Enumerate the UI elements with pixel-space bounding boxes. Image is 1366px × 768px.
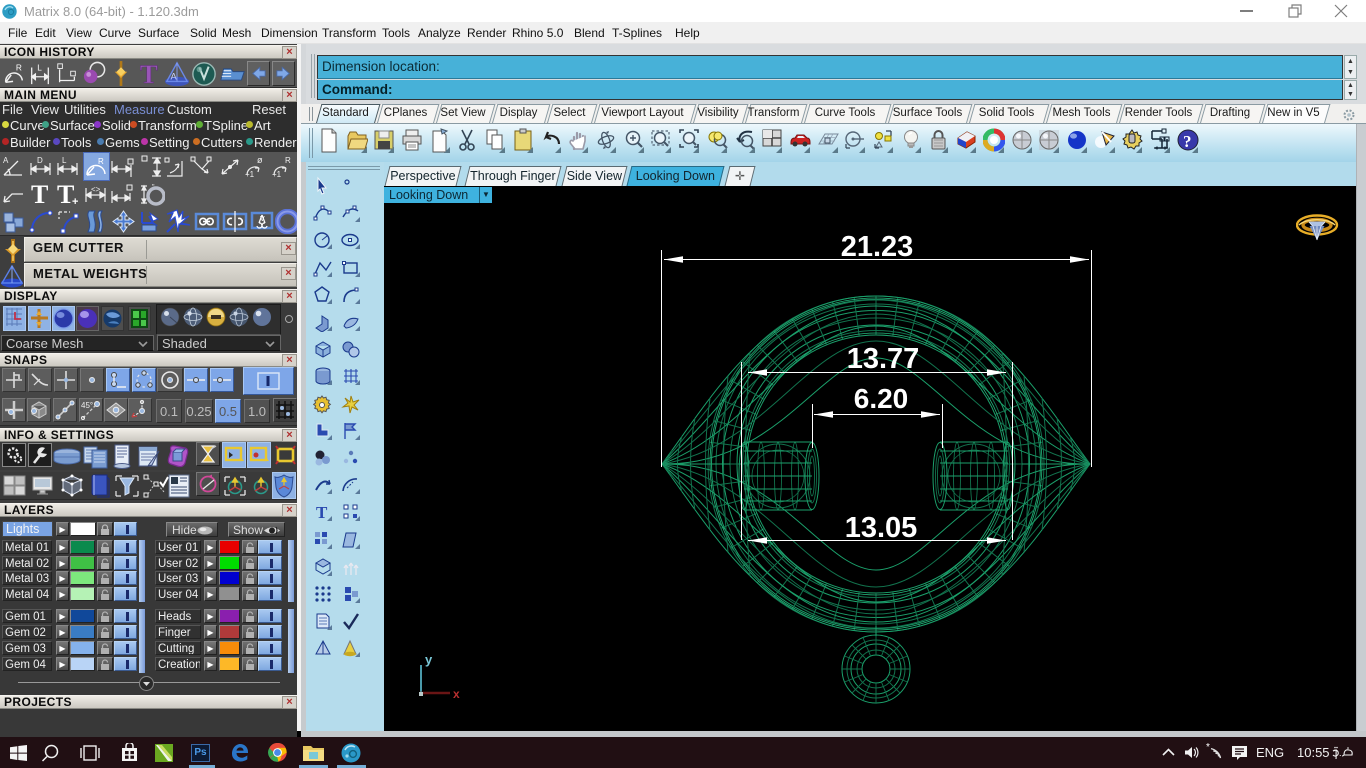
svg-text:T: T	[316, 503, 328, 522]
svg-text:R: R	[16, 62, 22, 72]
svg-text:A: A	[3, 156, 9, 165]
svg-text:+1: +1	[245, 170, 255, 178]
svg-text:45°: 45°	[81, 401, 93, 410]
svg-text:21.23: 21.23	[841, 231, 914, 263]
svg-text:13.05: 13.05	[845, 512, 918, 544]
svg-text:+1: +1	[272, 170, 282, 178]
svg-text:R: R	[98, 157, 104, 166]
svg-text:D: D	[37, 156, 43, 165]
svg-text:+: +	[72, 196, 78, 207]
svg-text:6.20: 6.20	[854, 383, 909, 414]
svg-text:V: V	[260, 216, 265, 223]
svg-text:x: x	[453, 687, 460, 701]
svg-text:T: T	[31, 181, 48, 207]
svg-text:?: ?	[1183, 132, 1192, 151]
svg-text:A: A	[171, 72, 178, 82]
svg-text:y: y	[425, 652, 433, 667]
svg-text:T: T	[140, 60, 158, 87]
svg-text:ø: ø	[257, 155, 263, 165]
svg-text:L: L	[62, 156, 67, 165]
svg-text:R: R	[285, 156, 291, 165]
svg-text:L: L	[37, 62, 42, 72]
svg-text:13.77: 13.77	[847, 343, 920, 375]
svg-text:<>: <>	[91, 185, 101, 194]
